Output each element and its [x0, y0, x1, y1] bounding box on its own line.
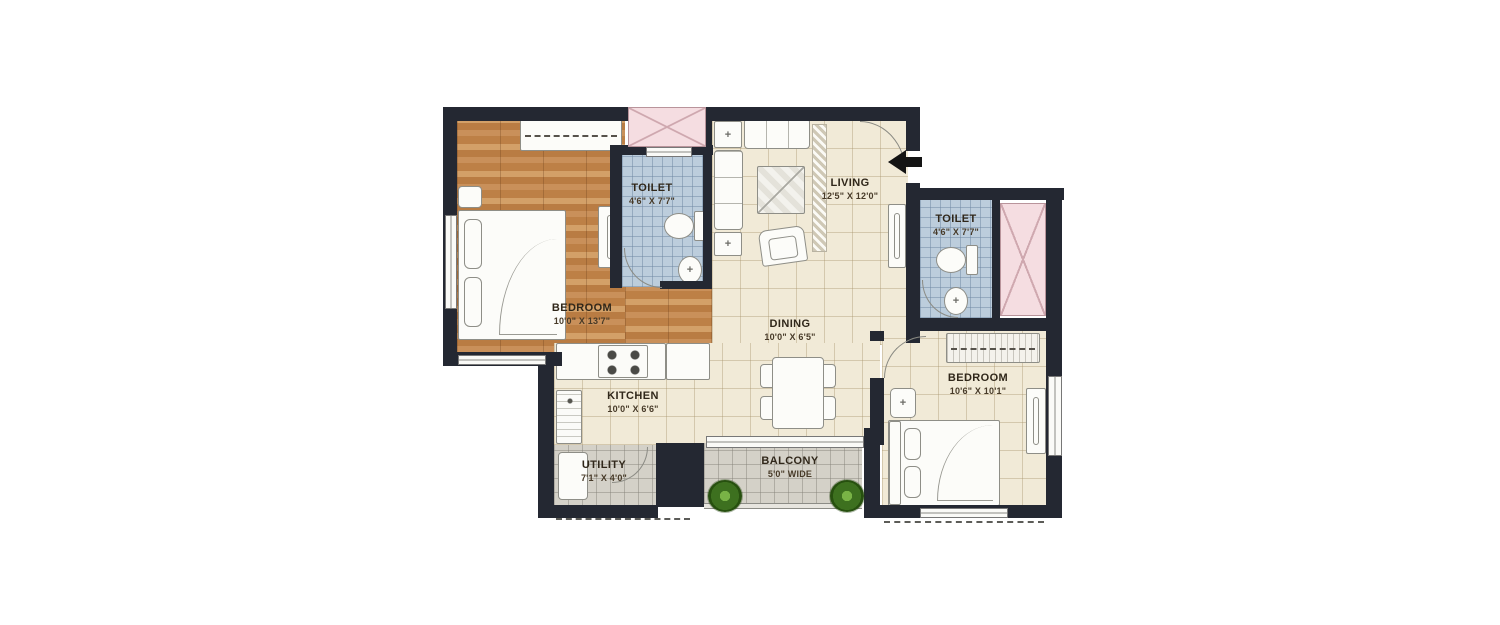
dining-chair	[760, 364, 773, 388]
dining-chair	[760, 396, 773, 420]
bedside-table	[458, 186, 482, 208]
plant	[708, 480, 742, 512]
wall-kitchen-left	[538, 352, 554, 518]
pillow	[464, 219, 482, 269]
wall-right-outer	[1046, 188, 1062, 518]
side-table: +	[714, 121, 742, 148]
room-name: TOILET	[602, 182, 702, 196]
room-dims: 7'1" X 4'0"	[546, 473, 662, 484]
bedroom2-bottom-window	[920, 508, 1008, 518]
room-name: LIVING	[790, 177, 910, 191]
bedroom2-label: BEDROOM 10'6" X 10'1"	[918, 372, 1038, 397]
utility-label: UTILITY 7'1" X 4'0"	[546, 459, 662, 484]
room-name: BEDROOM	[918, 372, 1038, 386]
dresser	[1026, 388, 1046, 454]
wall-toilet2-bottom	[906, 318, 1046, 331]
room-name: DINING	[730, 318, 850, 332]
balcony-sliding-door	[706, 436, 864, 448]
room-dims: 10'6" X 10'1"	[918, 386, 1038, 397]
room-dims: 4'6" X 7'7"	[912, 227, 1000, 238]
wall-dining-bedroom2-stub	[870, 331, 884, 341]
toilet-bowl	[664, 213, 694, 239]
toilet-bowl	[936, 247, 966, 273]
wardrobe	[520, 119, 622, 151]
projection-line-utility	[556, 518, 690, 520]
floor-plan: + + + + +	[0, 0, 1500, 625]
wall-balcony-post-right	[864, 428, 880, 518]
wall-living-right-upper	[906, 107, 920, 151]
sofa-top	[744, 118, 810, 149]
room-dims: 4'6" X 7'7"	[602, 196, 702, 207]
duct-box	[628, 107, 706, 147]
wardrobe-door-line	[525, 135, 617, 137]
duct-ledge	[646, 147, 692, 157]
bed	[888, 420, 1000, 506]
armchair-seat	[768, 235, 799, 261]
entry-arrow-head	[888, 150, 906, 174]
dining-label: DINING 10'0" X 6'5"	[730, 318, 850, 343]
balcony-label: BALCONY 5'0" WIDE	[730, 455, 850, 480]
wall-toilet2-top	[906, 188, 1064, 200]
pillow	[904, 428, 921, 460]
shower-area	[1000, 203, 1046, 316]
plant	[830, 480, 864, 512]
tv-unit	[888, 204, 906, 268]
projection-line-bedroom2	[884, 521, 1044, 523]
room-name: TOILET	[912, 213, 1000, 227]
room-dims: 10'0" X 6'6"	[573, 404, 693, 415]
bed-headboard	[889, 421, 901, 505]
armchair	[758, 225, 809, 267]
room-name: BALCONY	[730, 455, 850, 469]
room-name: BEDROOM	[522, 302, 642, 316]
entry-arrow-tail	[906, 157, 922, 167]
toilet1-label: TOILET 4'6" X 7'7"	[602, 182, 702, 207]
tv-unit-inner	[894, 213, 900, 259]
blanket-fold	[937, 425, 993, 501]
room-dims: 10'0" X 13'7"	[522, 316, 642, 327]
wall-toilet1-bottom-stub	[660, 281, 712, 289]
side-table: +	[714, 232, 742, 256]
kitchen-label: KITCHEN 10'0" X 6'6"	[573, 390, 693, 415]
dining-chair	[823, 396, 836, 420]
wall-utility-bottom	[538, 505, 658, 518]
dining-chair	[823, 364, 836, 388]
wardrobe-door-line	[951, 348, 1036, 350]
living-label: LIVING 12'5" X 12'0"	[790, 177, 910, 202]
stove	[598, 345, 648, 378]
room-dims: 12'5" X 12'0"	[790, 191, 910, 202]
bedroom1-left-window	[445, 215, 457, 309]
bedside-table: +	[890, 388, 916, 418]
dining-table	[772, 357, 824, 429]
wall-toilet1-left	[610, 152, 622, 288]
room-name: KITCHEN	[573, 390, 693, 404]
room-dims: 10'0" X 6'5"	[730, 332, 850, 343]
room-dims: 5'0" WIDE	[730, 469, 850, 480]
sofa-left	[714, 150, 743, 230]
kitchen-counter-right	[666, 343, 710, 380]
pillow	[904, 466, 921, 498]
dresser-inner	[1033, 397, 1039, 445]
room-name: UTILITY	[546, 459, 662, 473]
wardrobe	[946, 333, 1040, 363]
toilet2-label: TOILET 4'6" X 7'7"	[912, 213, 1000, 238]
entry-arrow-icon	[888, 150, 922, 174]
pillow	[464, 277, 482, 327]
bedroom1-bottom-window	[458, 355, 546, 365]
bedroom1-label: BEDROOM 10'0" X 13'7"	[522, 302, 642, 327]
toilet-tank	[966, 245, 978, 275]
bedroom2-right-window	[1048, 376, 1062, 456]
wash-basin: +	[678, 256, 702, 284]
wall-utility-balcony-block	[656, 443, 704, 507]
